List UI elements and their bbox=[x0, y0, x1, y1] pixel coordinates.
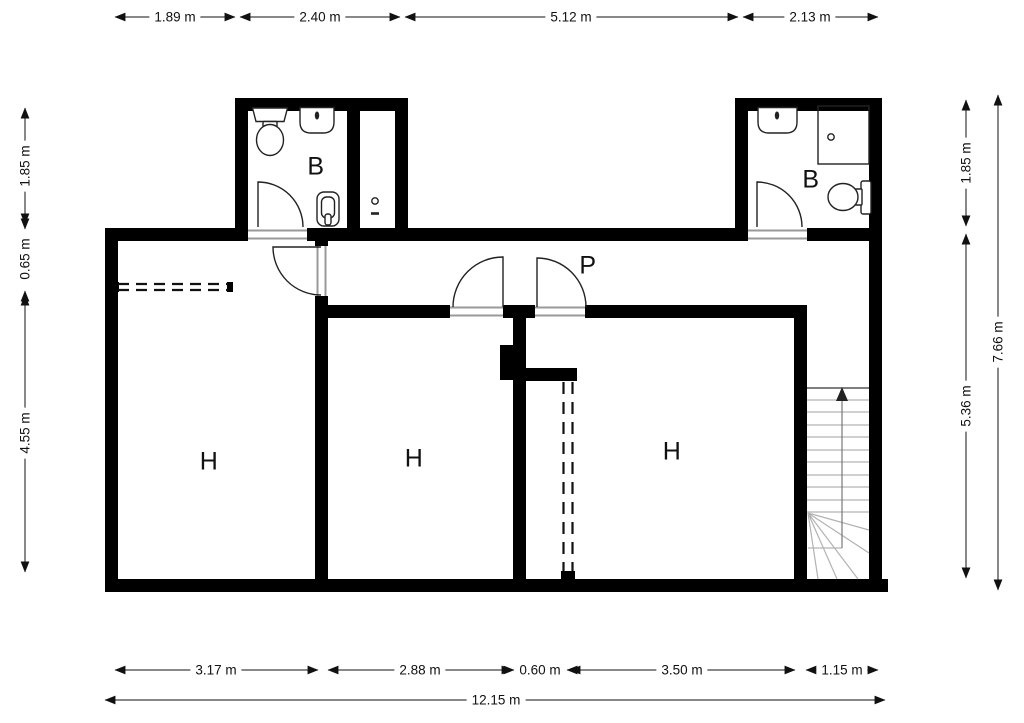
dim-label-top-1: 1.89 m bbox=[149, 10, 200, 25]
dim-label-bottom-total: 12.15 m bbox=[467, 693, 526, 708]
dashed-openings bbox=[118, 284, 573, 571]
door-thresholds bbox=[248, 231, 807, 316]
floor-plan: B B P H H H 1.89 m 2.40 m 5.12 m 2.13 m … bbox=[0, 0, 1024, 723]
room-label-bedroom-middle: H bbox=[405, 445, 424, 474]
room-label-hallway: P bbox=[579, 252, 596, 281]
stair-winders bbox=[808, 513, 869, 579]
sink-icon bbox=[758, 108, 797, 134]
floor-plan-drawing bbox=[0, 0, 1024, 723]
toilet-icon bbox=[828, 181, 871, 214]
room-label-bedroom-left: H bbox=[200, 448, 219, 477]
exterior-walls bbox=[105, 98, 888, 592]
door-bedroom-left bbox=[273, 247, 321, 295]
stairs-up-arrow-icon bbox=[836, 387, 848, 401]
dim-label-right-1: 1.85 m bbox=[959, 137, 974, 188]
dim-label-right-total: 7.66 m bbox=[991, 316, 1006, 367]
threshold-bedroom-left-door bbox=[318, 246, 326, 296]
dim-label-top-4: 2.13 m bbox=[784, 10, 835, 25]
dim-label-bottom-2: 2.88 m bbox=[394, 663, 445, 678]
dim-label-left-1: 1.85 m bbox=[18, 140, 33, 191]
dim-label-bottom-4: 3.50 m bbox=[656, 663, 707, 678]
stair-treads bbox=[807, 400, 869, 512]
dim-label-bottom-3: 0.60 m bbox=[514, 663, 565, 678]
interior-walls bbox=[113, 111, 807, 580]
fixtures bbox=[253, 106, 872, 226]
threshold-hall-door-b bbox=[535, 308, 585, 316]
toilet-icon bbox=[253, 108, 288, 156]
stairs bbox=[807, 387, 869, 579]
threshold-hall-door-a bbox=[450, 308, 503, 316]
dim-label-top-3: 5.12 m bbox=[545, 10, 596, 25]
threshold-bathroom-left bbox=[248, 231, 307, 239]
bidet-icon bbox=[317, 192, 339, 226]
door-bathroom-right bbox=[757, 182, 802, 227]
room-label-bathroom-right: B bbox=[802, 166, 819, 195]
dim-label-right-2: 5.36 m bbox=[959, 380, 974, 431]
shower-valve-icon bbox=[371, 198, 379, 214]
door-bedroom-middle bbox=[453, 257, 503, 307]
room-label-bathroom-left: B bbox=[307, 153, 324, 182]
sink-icon bbox=[300, 108, 334, 134]
shower-icon bbox=[818, 106, 869, 164]
dim-label-bottom-5: 1.15 m bbox=[816, 663, 867, 678]
room-label-bedroom-right: H bbox=[663, 438, 682, 467]
door-bathroom-left bbox=[258, 182, 303, 227]
dim-label-left-2: 0.65 m bbox=[18, 233, 33, 284]
dim-label-top-2: 2.40 m bbox=[294, 10, 345, 25]
dim-label-left-3: 4.55 m bbox=[18, 407, 33, 458]
dim-label-bottom-1: 3.17 m bbox=[190, 663, 241, 678]
threshold-bathroom-right bbox=[748, 231, 807, 239]
